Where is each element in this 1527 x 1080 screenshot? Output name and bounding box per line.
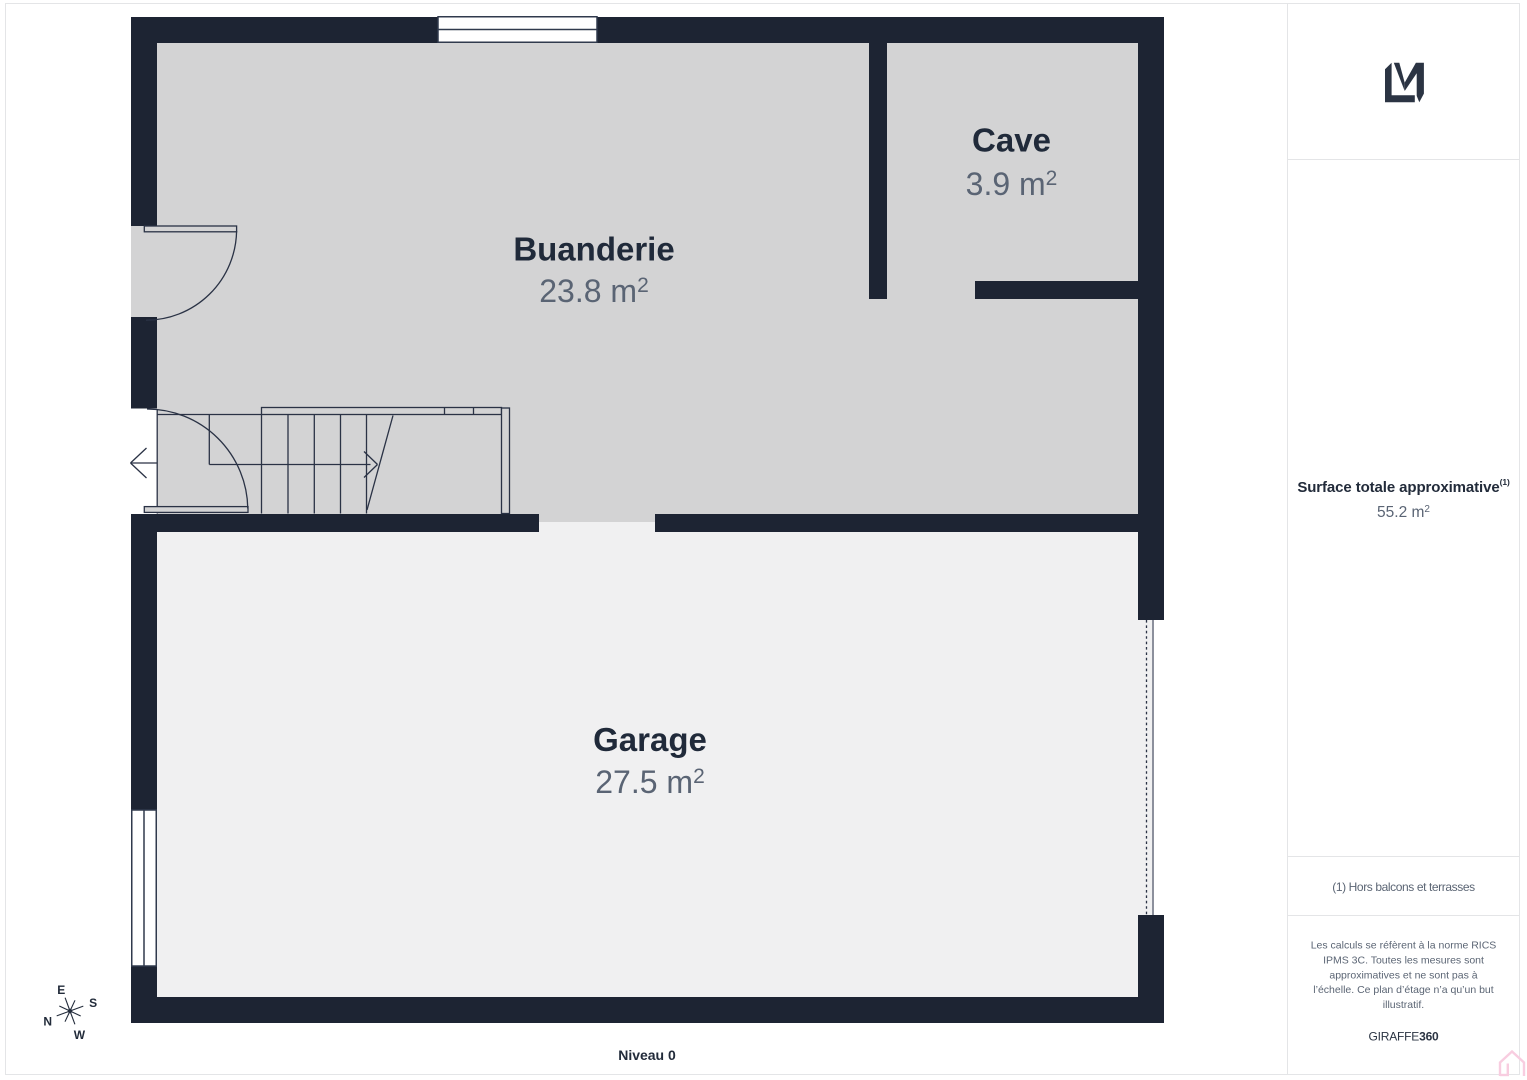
svg-text:27.5 m2: 27.5 m2: [595, 764, 705, 800]
svg-text:Niveau 0: Niveau 0: [618, 1047, 676, 1063]
svg-text:W: W: [74, 1028, 86, 1042]
svg-text:approximatives et ne sont pas: approximatives et ne sont pas à: [1329, 969, 1477, 981]
svg-text:Garage: Garage: [593, 721, 707, 758]
svg-text:Les calculs se réfèrent à la n: Les calculs se réfèrent à la norme RICS: [1311, 940, 1497, 952]
svg-text:3.9 m2: 3.9 m2: [966, 166, 1058, 202]
svg-text:23.8 m2: 23.8 m2: [539, 273, 649, 309]
svg-text:55.2 m2: 55.2 m2: [1377, 504, 1430, 521]
svg-text:Cave: Cave: [972, 122, 1051, 159]
svg-text:GIRAFFE360: GIRAFFE360: [1368, 1030, 1439, 1044]
svg-text:S: S: [89, 996, 97, 1010]
svg-text:Surface totale approximative(1: Surface totale approximative(1): [1297, 477, 1510, 496]
svg-text:illustratif.: illustratif.: [1383, 999, 1424, 1011]
svg-text:N: N: [43, 1015, 52, 1029]
svg-text:E: E: [57, 983, 65, 997]
svg-text:l’échelle. Ce plan d’étage n’a: l’échelle. Ce plan d’étage n’a qu’un but: [1313, 984, 1493, 996]
svg-text:Buanderie: Buanderie: [513, 231, 674, 268]
svg-text:IPMS 3C. Toutes les mesures so: IPMS 3C. Toutes les mesures sont: [1323, 954, 1484, 966]
svg-text:(1) Hors balcons et terrasses: (1) Hors balcons et terrasses: [1332, 880, 1475, 894]
